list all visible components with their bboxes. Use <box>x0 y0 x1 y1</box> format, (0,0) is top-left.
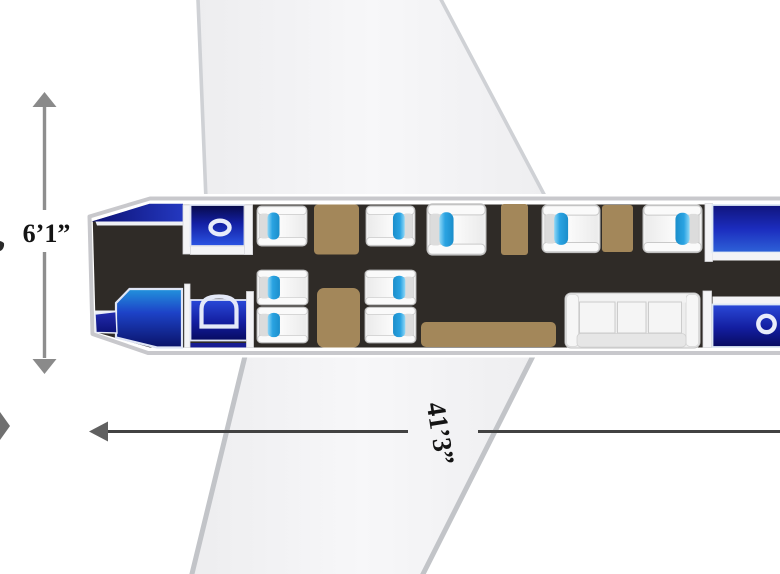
svg-text:6’1”: 6’1” <box>23 219 71 248</box>
